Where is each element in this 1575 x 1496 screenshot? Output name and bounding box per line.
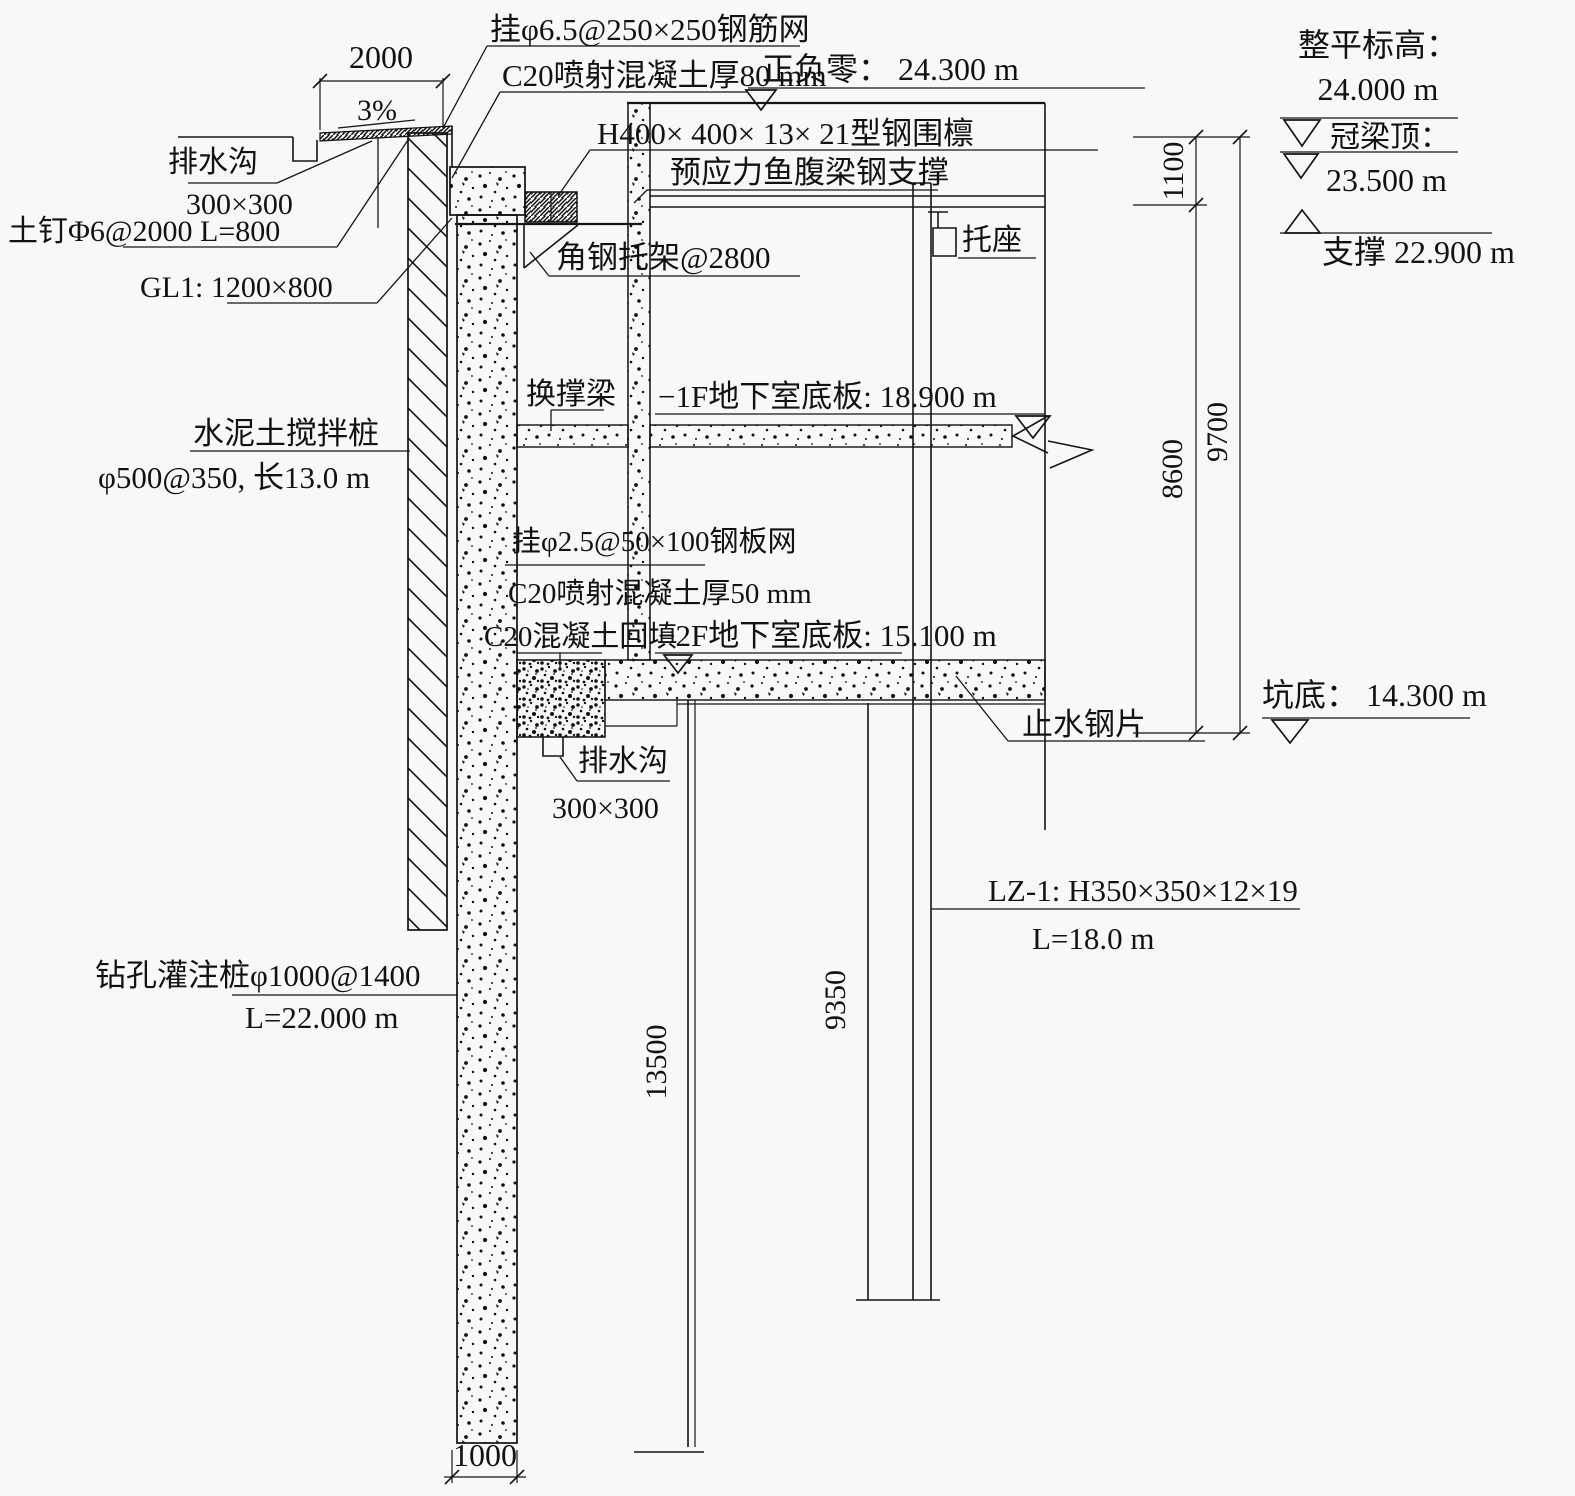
shotcrete2-label: C20喷射混凝土厚50 mm	[508, 577, 812, 610]
dim-13500-text: 13500	[640, 1025, 673, 1100]
pit-bottom-label: 坑底： 14.300 m	[1262, 677, 1487, 713]
bored-pile-length-label: L=22.000 m	[245, 1000, 399, 1035]
slab-2f-label: −2F地下室底板: 15.100 m	[658, 618, 997, 653]
mixing-pile-label-2: φ500@350, 长13.0 m	[98, 460, 370, 495]
dim-1000-text: 1000	[453, 1437, 517, 1473]
c20-backfill-block	[517, 660, 605, 737]
dimension-1000: 1000	[444, 1437, 526, 1484]
zero-level-label: 正负零： 24.300 m	[762, 51, 1019, 87]
dim-9350-text: 9350	[819, 970, 852, 1030]
slab-1f-body	[650, 425, 1012, 447]
support-level-label: 支撑 22.900 m	[1322, 234, 1515, 270]
slab-2f-body	[605, 660, 1045, 700]
mixing-pile-label-1: 水泥土搅拌桩	[193, 416, 379, 451]
transfer-beam-label: 换撑梁	[526, 378, 616, 411]
slab-break-chevron	[1048, 441, 1092, 468]
mesh-top-label: 挂φ6.5@250×250钢筋网	[490, 12, 810, 47]
dim-1100-text: 1100	[1157, 142, 1190, 201]
backfill-label: C20混凝土回填	[484, 620, 677, 653]
cement-soil-mixing-pile-wall	[408, 133, 447, 930]
top-drain-notch	[293, 137, 317, 161]
pit-drain-label: 排水沟	[578, 745, 668, 778]
bored-pile-spec-label: 钻孔灌注桩φ1000@1400	[95, 958, 420, 993]
transfer-beam-body	[517, 425, 628, 447]
top-drain-label: 排水沟	[168, 146, 258, 179]
support-level-marker	[1280, 210, 1492, 233]
angle-bracket-label: 角钢托架@2800	[556, 240, 771, 275]
dim-8600-text: 8600	[1156, 439, 1189, 499]
level-triangle-zero	[746, 90, 776, 110]
slope-label: 3%	[357, 94, 397, 127]
section-drawing: 2000 1100 8600 9700 13500 9350 1000	[0, 0, 1575, 1496]
seat-bracket	[928, 212, 956, 256]
drawing-sheet: 2000 1100 8600 9700 13500 9350 1000	[0, 0, 1575, 1496]
slab-1f-label: −1F地下室底板: 18.900 m	[658, 379, 997, 414]
gl1-crown-beam	[450, 167, 525, 215]
lz1-spec-label: LZ-1: H350×350×12×19	[988, 873, 1298, 908]
mesh2-label: 挂φ2.5@50×100钢板网	[512, 525, 797, 558]
dim-9700-text: 9700	[1201, 402, 1234, 462]
pit-bottom-level-marker	[1262, 718, 1470, 743]
soil-nail-label: 土钉Φ6@2000 L=800	[8, 215, 280, 248]
pit-drain-size: 300×300	[552, 792, 659, 825]
pit-drain-notch	[543, 737, 563, 756]
basement-wall	[628, 103, 650, 660]
waler-label: H400× 400× 13× 21型钢围檩	[597, 116, 974, 151]
crown-label: 冠梁顶：	[1330, 121, 1450, 154]
drain-leader	[277, 141, 372, 183]
leveling-label: 整平标高：	[1298, 27, 1458, 63]
slab-minus1f	[517, 416, 1092, 468]
waterstop-label: 止水钢片	[1022, 707, 1146, 742]
lz1-length-label: L=18.0 m	[1032, 921, 1155, 956]
bored-pile	[457, 215, 517, 1443]
gl1-label: GL1: 1200×800	[140, 271, 333, 304]
dim-2000-text: 2000	[349, 39, 413, 75]
leveling-value: 24.000 m	[1318, 71, 1439, 107]
seat-label: 托座	[962, 224, 1022, 257]
fish-belly-label: 预应力鱼腹梁钢支撑	[670, 155, 949, 190]
crown-value: 23.500 m	[1326, 162, 1447, 198]
soil-nail-incline	[337, 140, 408, 247]
slab-minus2f	[517, 660, 1045, 756]
right-dimension-chain: 1100 8600 9700	[1133, 130, 1250, 740]
